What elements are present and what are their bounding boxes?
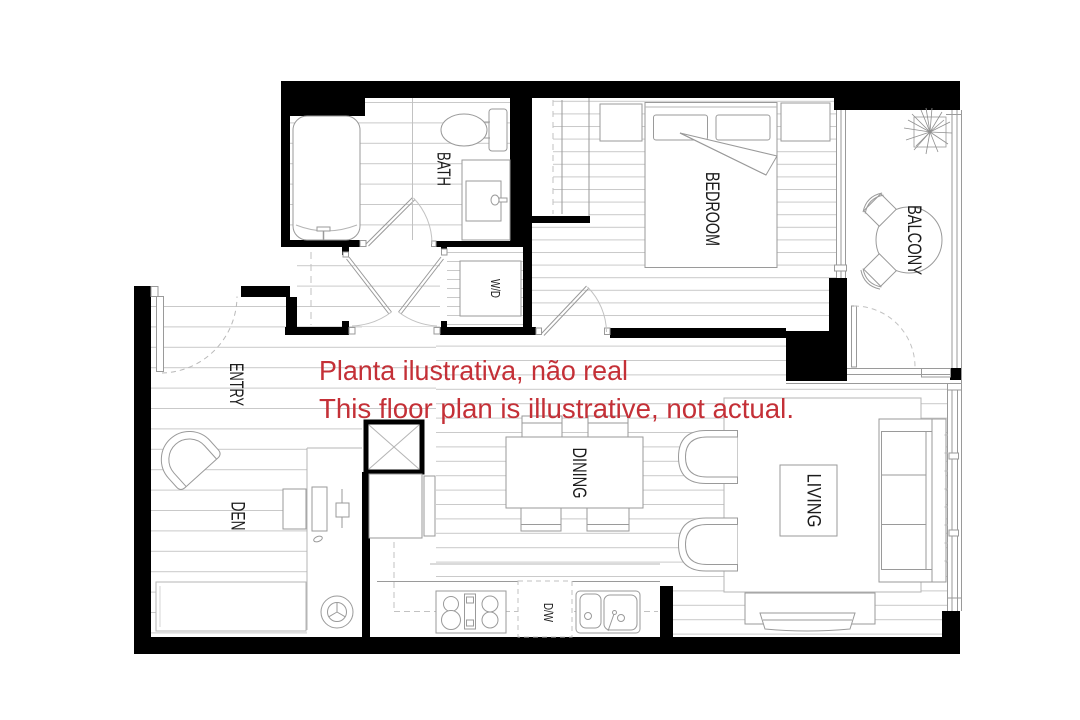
svg-text:This floor plan is illustrativ: This floor plan is illustrative, not act… bbox=[319, 393, 794, 424]
svg-text:Planta ilustrativa, não real: Planta ilustrativa, não real bbox=[319, 355, 628, 386]
svg-text:W/D: W/D bbox=[488, 279, 503, 298]
svg-text:BATH: BATH bbox=[434, 152, 454, 186]
svg-text:LIVING: LIVING bbox=[803, 474, 824, 528]
svg-text:DEN: DEN bbox=[227, 502, 248, 531]
svg-text:BALCONY: BALCONY bbox=[903, 205, 924, 275]
svg-text:BEDROOM: BEDROOM bbox=[701, 172, 723, 246]
svg-text:ENTRY: ENTRY bbox=[225, 363, 246, 406]
svg-text:D/W: D/W bbox=[541, 603, 556, 623]
svg-text:DINING: DINING bbox=[568, 448, 589, 499]
